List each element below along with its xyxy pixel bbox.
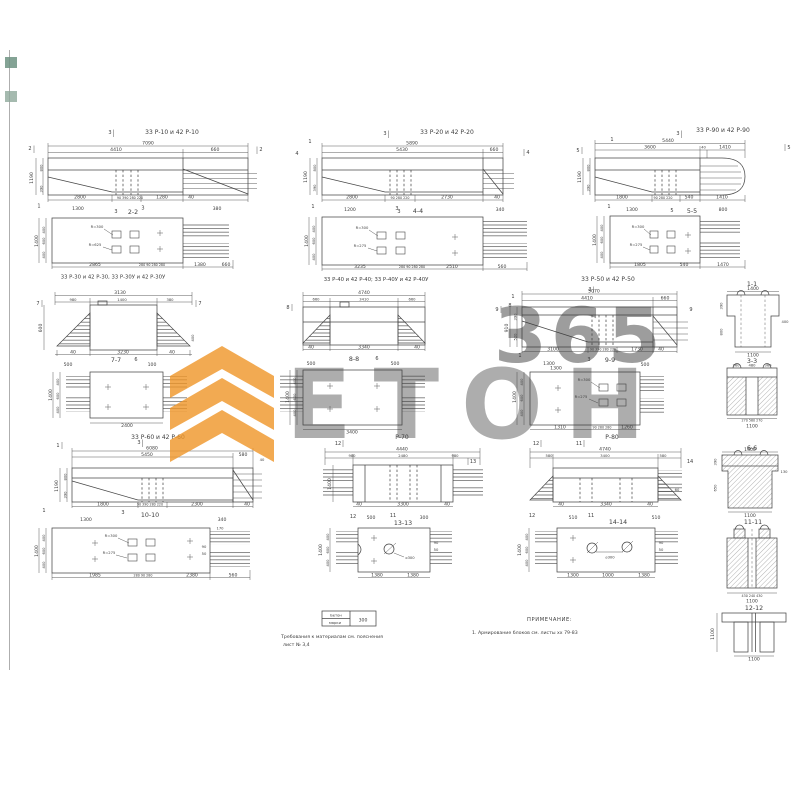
dim: 400 xyxy=(56,406,60,414)
dim: 1410 xyxy=(716,195,728,201)
dim: 280 90 280 xyxy=(134,574,153,578)
section-mark: 1 xyxy=(311,204,314,210)
dim: 3300 xyxy=(397,501,409,507)
dim: 600 xyxy=(312,237,316,245)
note-heading: ПРИМЕЧАНИЕ: xyxy=(527,617,572,623)
dim: 3235 xyxy=(354,264,366,270)
dim: 390 xyxy=(720,302,724,310)
dim: 510 xyxy=(652,515,661,521)
dim: 3410 xyxy=(359,297,369,301)
dim: 400 xyxy=(56,378,60,386)
dim: 1100 xyxy=(710,628,716,640)
dim: 1300 xyxy=(626,207,638,213)
scan-mark xyxy=(5,91,17,102)
dim: 280 90 280 280 xyxy=(139,263,165,267)
dim: 560 xyxy=(229,572,238,578)
dim: 2380 xyxy=(186,572,198,578)
drawing-title: 33 Р-90 и 42 Р-90 xyxy=(696,127,750,134)
dim: 3600 xyxy=(644,145,656,151)
dim: 1400 xyxy=(592,234,598,246)
dim: 580 xyxy=(239,452,248,458)
section-mark: 3 xyxy=(114,209,117,215)
section-title: 7-7 xyxy=(111,357,121,364)
dim: 390 xyxy=(587,184,591,192)
dim: 1300 xyxy=(72,206,84,212)
dim: 800 xyxy=(720,328,724,336)
dim: 6080 xyxy=(146,446,158,452)
dim: 2300 xyxy=(191,501,203,507)
dim: 600 xyxy=(42,237,46,245)
dim: 600 xyxy=(326,546,330,554)
section-mark: 1 xyxy=(607,204,610,210)
watermark-digits: 365 xyxy=(494,291,665,380)
dim: 400 xyxy=(326,559,330,567)
dim: 800 xyxy=(719,207,728,213)
dim: 540 xyxy=(685,195,694,201)
dim: 1400 xyxy=(327,478,333,490)
dim: 660 xyxy=(211,147,220,153)
section-mark: 1 xyxy=(610,137,613,143)
dim: 1300 xyxy=(567,572,579,578)
dim: 4740 xyxy=(358,290,370,296)
section-mark: 3 xyxy=(383,131,386,137)
dim: 390 xyxy=(714,458,718,466)
dim: 50 xyxy=(434,548,439,552)
dim: 340 xyxy=(218,517,227,523)
section-mark: 7 xyxy=(198,301,201,307)
note-text: 1. Армирование блоков см. листы хх 79-83 xyxy=(472,630,578,636)
dim: 600 xyxy=(56,392,60,400)
section-mark: 3 xyxy=(676,131,679,137)
dim: 40 xyxy=(260,458,265,462)
dim: 4410 xyxy=(110,147,122,153)
section-mark: 3 xyxy=(397,209,400,215)
section-mark: 5 xyxy=(670,208,673,214)
section-title: 11-11 xyxy=(744,519,762,526)
dim: 1985 xyxy=(89,572,101,578)
dim: 650 xyxy=(714,484,718,492)
dim: 1400 xyxy=(117,298,127,302)
section-mark: 2 xyxy=(28,146,31,152)
section-mark: 7 xyxy=(36,301,39,307)
drawing-title: 33 Р-30 и 42 Р-30, 33 Р-30У и 42 Р-30У xyxy=(61,275,166,281)
drawing-sheet: 33 Р-10 и 42 Р-10 7090 4410 660 1190 800… xyxy=(0,0,800,800)
dim: 2800 xyxy=(346,195,358,201)
section-title: 12-12 xyxy=(745,605,763,612)
dim: 1000 xyxy=(602,572,614,578)
dim: 1200 xyxy=(344,207,356,213)
table-cell: марки xyxy=(329,621,342,625)
drawing-title: 33 Р-20 и 42 Р-20 xyxy=(420,129,474,136)
diameter-label: ⌀300 xyxy=(405,556,415,560)
dim: 1190 xyxy=(29,172,35,184)
radius-label: R=300 xyxy=(105,534,118,538)
dim: 560 xyxy=(498,264,507,270)
dim: 1300 xyxy=(80,517,92,523)
dim: 100 xyxy=(148,362,157,368)
dim: 2800 xyxy=(74,195,86,201)
section-mark: 3 xyxy=(137,440,140,446)
section-mark: 4 xyxy=(295,151,298,157)
dim: 40 xyxy=(70,349,76,355)
dim: 380 xyxy=(166,298,174,302)
note-text: лист № 3,4 xyxy=(283,642,310,648)
radius-label: R=275 xyxy=(103,551,116,555)
section-mark: 1 xyxy=(42,508,45,514)
section-mark: 3 xyxy=(108,130,111,136)
dim: 1400 xyxy=(34,235,40,247)
dim: 40 xyxy=(647,501,653,507)
dim: 800 xyxy=(587,164,591,172)
dim: 1100 xyxy=(748,657,760,663)
dim: 2730 xyxy=(441,195,453,201)
dim: 400 xyxy=(525,559,529,567)
section-title: 13-13 xyxy=(394,520,412,527)
dim: 1805 xyxy=(634,262,646,268)
dim: 400 xyxy=(600,251,604,259)
dim: 40 xyxy=(701,146,706,150)
dim: 5440 xyxy=(662,138,674,144)
dim: 400 xyxy=(191,334,195,342)
dim: 2400 xyxy=(121,423,133,429)
dim: 60 xyxy=(675,488,680,492)
section-mark: 12 xyxy=(350,514,356,520)
section-mark: 8 xyxy=(286,305,289,311)
dim: 980 xyxy=(69,298,77,302)
dim: 3230 xyxy=(117,349,129,355)
section-mark: 11 xyxy=(588,513,594,519)
dim: 270 560 270 xyxy=(742,419,763,423)
dim: 5430 xyxy=(396,147,408,153)
dim: 40 xyxy=(494,195,500,201)
dim: 400 xyxy=(600,224,604,232)
dim: 1800 xyxy=(616,195,628,201)
scan-mark xyxy=(5,57,17,68)
dim: 90 280 220 xyxy=(391,196,410,200)
dim: 430 240 430 xyxy=(742,594,763,598)
dim: 40 xyxy=(444,501,450,507)
dim: 400 xyxy=(781,320,789,324)
section-mark: 3 xyxy=(141,206,144,212)
dim: 600 xyxy=(42,547,46,555)
section-mark: 5 xyxy=(787,145,790,151)
dim: 800 xyxy=(313,164,317,172)
dim: 1190 xyxy=(577,171,583,183)
section-mark: 4 xyxy=(526,150,529,156)
dim: 660 xyxy=(490,147,499,153)
radius-label: R=300 xyxy=(91,225,104,229)
section-mark: 2 xyxy=(259,147,262,153)
dim: 3130 xyxy=(114,290,126,296)
dim: 660 xyxy=(408,297,416,301)
dim: 660 xyxy=(312,297,320,301)
dim: 380 xyxy=(213,206,222,212)
section-mark: 1 xyxy=(308,139,311,145)
dim: 800 xyxy=(40,164,44,172)
dim: 360 xyxy=(764,364,772,368)
dim: 1400 xyxy=(744,447,756,453)
dim: 480 xyxy=(748,364,756,368)
dim: 1410 xyxy=(719,145,731,151)
dim: 90 390 280 220 xyxy=(117,196,143,200)
dim: 360 xyxy=(732,364,740,368)
section-mark: 6 xyxy=(134,357,137,363)
dim: 40 xyxy=(244,501,250,507)
radius-label: R=300 xyxy=(632,225,645,229)
note-text: Требования к материалам см. пояснения xyxy=(280,634,383,640)
section-mark: 5 xyxy=(576,148,579,154)
section-mark: 3 xyxy=(121,510,124,516)
dim: 500 xyxy=(367,515,376,521)
dim: 390 xyxy=(64,491,68,499)
dim: 1800 xyxy=(97,501,109,507)
section-title: 10-10 xyxy=(141,512,159,519)
dim: 400 xyxy=(525,533,529,541)
drawing-title: 33 Р-10 и 42 Р-10 xyxy=(145,129,199,136)
drawing-title: 33 Р-50 и 42 Р-50 xyxy=(581,276,635,283)
dim: 5890 xyxy=(406,141,418,147)
dim: 400 xyxy=(312,253,316,261)
dim: 50 xyxy=(659,548,664,552)
section-title: 5-5 xyxy=(687,208,697,215)
radius-label: R=275 xyxy=(630,243,643,247)
dim: 540 xyxy=(680,262,689,268)
dim: 390 xyxy=(40,185,44,193)
dim: 90 xyxy=(202,545,207,549)
section-mark: 1 xyxy=(37,204,40,210)
dim: 500 xyxy=(64,362,73,368)
dim: 1380 xyxy=(407,572,419,578)
section-title: 4-4 xyxy=(413,208,423,215)
dim: 1380 xyxy=(194,262,206,268)
table-cell: Бетон xyxy=(330,614,342,618)
dim: 1400 xyxy=(48,389,54,401)
dim: 50 xyxy=(202,552,207,556)
radius-label: R=300 xyxy=(356,226,369,230)
drawing-title: 33 Р-40 и 42 Р-40; 33 Р-40У и 42 Р-40У xyxy=(324,277,429,283)
diameter-label: ⌀300 xyxy=(605,556,615,560)
dim: 1400 xyxy=(747,286,759,292)
dim: 90 280 220 xyxy=(654,196,673,200)
dim: 1400 xyxy=(304,235,310,247)
dim: 40 xyxy=(558,501,564,507)
dim: 1470 xyxy=(717,262,729,268)
dim: 660 xyxy=(222,262,231,268)
dim: 2510 xyxy=(446,264,458,270)
dim: 5450 xyxy=(141,452,153,458)
dim: 2865 xyxy=(89,262,101,268)
section-mark: 11 xyxy=(390,513,396,519)
section-mark: 12 xyxy=(529,513,535,519)
dim: 340 xyxy=(496,207,505,213)
dim: 1380 xyxy=(638,572,650,578)
dim: 130 xyxy=(780,470,788,474)
dim: 400 xyxy=(312,225,316,233)
section-mark: 1 xyxy=(56,443,59,449)
dim: 510 xyxy=(569,515,578,521)
dim: 300 xyxy=(420,515,429,521)
section-mark: 14 xyxy=(687,459,693,465)
dim: 400 xyxy=(42,561,46,569)
dim: 390 xyxy=(313,184,317,192)
dim: 280 90 280 280 xyxy=(399,265,425,269)
section-mark: 9 xyxy=(689,307,692,313)
dim: 600 xyxy=(600,236,604,244)
dim: 40 xyxy=(356,501,362,507)
dim: 400 xyxy=(42,251,46,259)
dim: 1380 xyxy=(371,572,383,578)
dim: 400 xyxy=(42,534,46,542)
section-title: 2-2 xyxy=(128,209,138,216)
dim: 400 xyxy=(326,533,330,541)
dim: 600 xyxy=(38,324,44,333)
dim: 1190 xyxy=(54,480,60,492)
dim: 40 xyxy=(169,349,175,355)
dim: 400 xyxy=(42,226,46,234)
section-title: 14-14 xyxy=(609,519,627,526)
dim: 40 xyxy=(188,195,194,201)
table-cell: 300 xyxy=(359,618,368,624)
dim: 1100 xyxy=(746,599,758,605)
dim: 3340 xyxy=(600,501,612,507)
dim: 90 xyxy=(434,541,439,545)
dim: 1400 xyxy=(34,545,40,557)
dim: 7090 xyxy=(142,141,154,147)
dim: 1100 xyxy=(746,424,758,430)
radius-label: R=625 xyxy=(89,243,102,247)
dim: 170 xyxy=(216,527,224,531)
dim: 600 xyxy=(525,546,529,554)
dim: 90 xyxy=(659,541,664,545)
dim: 1400 xyxy=(517,544,523,556)
dim: 90 390 280 220 xyxy=(137,503,163,507)
dim: 1400 xyxy=(318,544,324,556)
dim: 1190 xyxy=(303,171,309,183)
radius-label: R=275 xyxy=(354,244,367,248)
dim: 1280 xyxy=(156,195,168,201)
dim: 800 xyxy=(64,473,68,481)
